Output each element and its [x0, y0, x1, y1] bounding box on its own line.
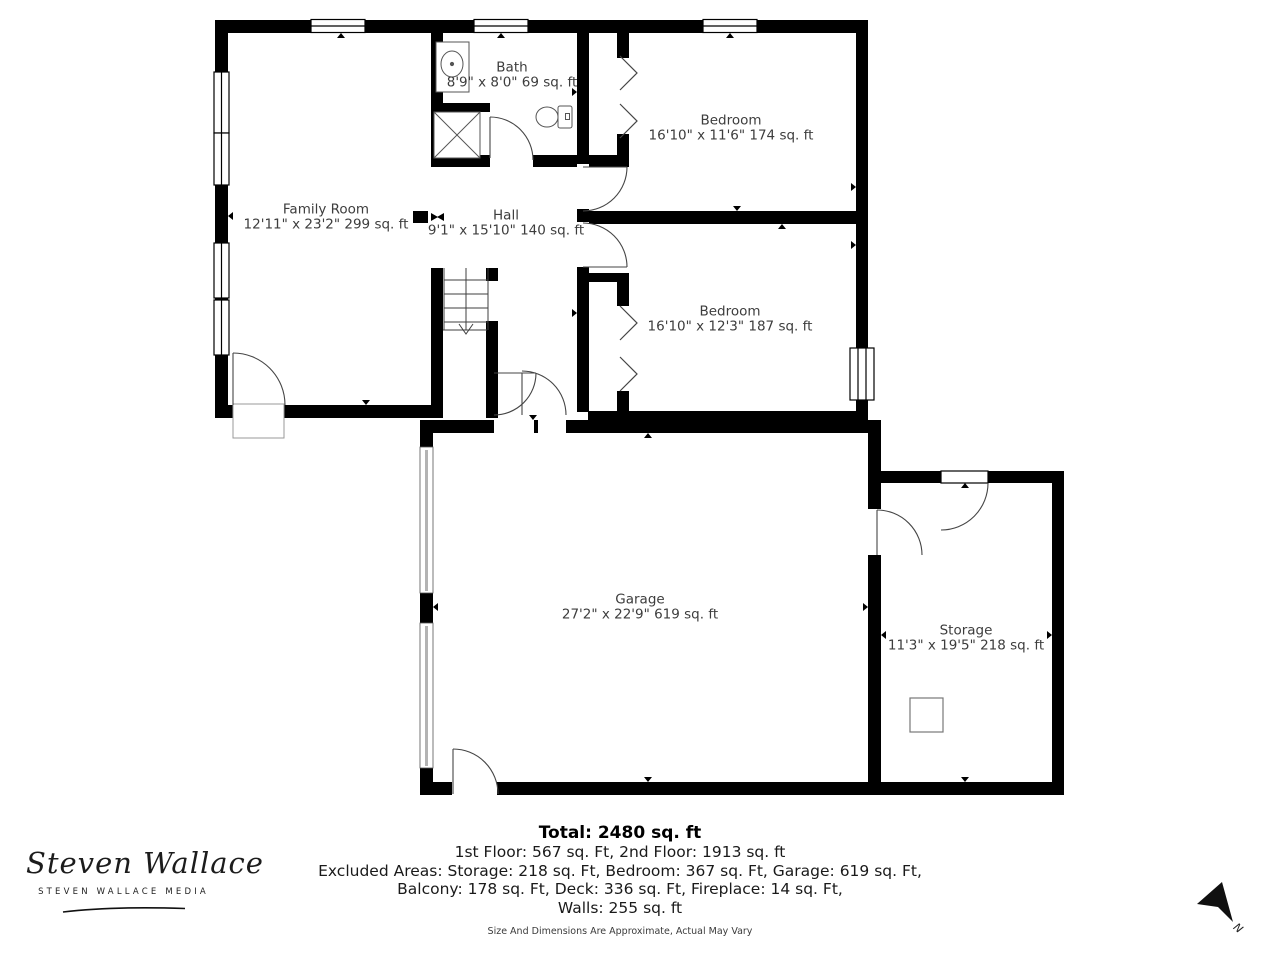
- room-label-bath: Bath 8'9" x 8'0" 69 sq. ft: [447, 61, 578, 90]
- excluded-areas-1: Excluded Areas: Storage: 218 sq. Ft, Bed…: [318, 862, 922, 881]
- brand-signature: Steven Wallace: [26, 846, 221, 880]
- room-name: Bedroom: [648, 305, 813, 320]
- room-dims: 16'10" x 12'3" 187 sq. ft: [648, 319, 813, 334]
- floor-plan-drawing: N: [0, 0, 1280, 960]
- excluded-areas-2: Balcony: 178 sq. Ft, Deck: 336 sq. Ft, F…: [318, 880, 922, 899]
- entry-step: [233, 404, 284, 438]
- room-label-hall: Hall 9'1" x 15'10" 140 sq. ft: [428, 209, 584, 238]
- floor-plan-page: N Bath 8'9" x 8'0" 69 sq. ft Bedroom 16'…: [0, 0, 1280, 960]
- toilet-icon: [536, 107, 558, 127]
- brand-tagline: STEVEN WALLACE MEDIA: [26, 887, 221, 897]
- floor-areas: 1st Floor: 567 sq. Ft, 2nd Floor: 1913 s…: [318, 843, 922, 862]
- north-arrow-icon: N: [1197, 882, 1245, 936]
- room-name: Bath: [447, 61, 578, 76]
- utility-box-icon: [910, 698, 943, 732]
- room-dims: 11'3" x 19'5" 218 sq. ft: [888, 638, 1044, 653]
- room-name: Storage: [888, 624, 1044, 639]
- walls-area: Walls: 255 sq. ft: [318, 899, 922, 918]
- area-summary: Total: 2480 sq. ft 1st Floor: 567 sq. Ft…: [318, 823, 922, 937]
- room-dims: 8'9" x 8'0" 69 sq. ft: [447, 75, 578, 90]
- disclaimer: Size And Dimensions Are Approximate, Act…: [318, 926, 922, 937]
- room-label-family-room: Family Room 12'11" x 23'2" 299 sq. ft: [244, 203, 409, 232]
- room-dims: 12'11" x 23'2" 299 sq. ft: [244, 217, 409, 232]
- room-label-bedroom-2: Bedroom 16'10" x 12'3" 187 sq. ft: [648, 305, 813, 334]
- room-name: Bedroom: [649, 114, 814, 129]
- room-name: Family Room: [244, 203, 409, 218]
- walls: [215, 20, 1064, 795]
- room-dims: 16'10" x 11'6" 174 sq. ft: [649, 128, 814, 143]
- swoosh-underline-icon: [26, 899, 221, 918]
- door-openings: [452, 155, 881, 795]
- room-dims: 27'2" x 22'9" 619 sq. ft: [562, 607, 718, 622]
- room-label-bedroom-1: Bedroom 16'10" x 11'6" 174 sq. ft: [649, 114, 814, 143]
- room-label-storage: Storage 11'3" x 19'5" 218 sq. ft: [888, 624, 1044, 653]
- stairs-icon: [443, 268, 488, 334]
- brand-logo: Steven Wallace STEVEN WALLACE MEDIA: [26, 846, 221, 918]
- north-label: N: [1231, 921, 1246, 936]
- total-area: Total: 2480 sq. ft: [318, 823, 922, 843]
- room-name: Garage: [562, 593, 718, 608]
- room-label-garage: Garage 27'2" x 22'9" 619 sq. ft: [562, 593, 718, 622]
- room-name: Hall: [428, 209, 584, 224]
- room-dims: 9'1" x 15'10" 140 sq. ft: [428, 223, 584, 238]
